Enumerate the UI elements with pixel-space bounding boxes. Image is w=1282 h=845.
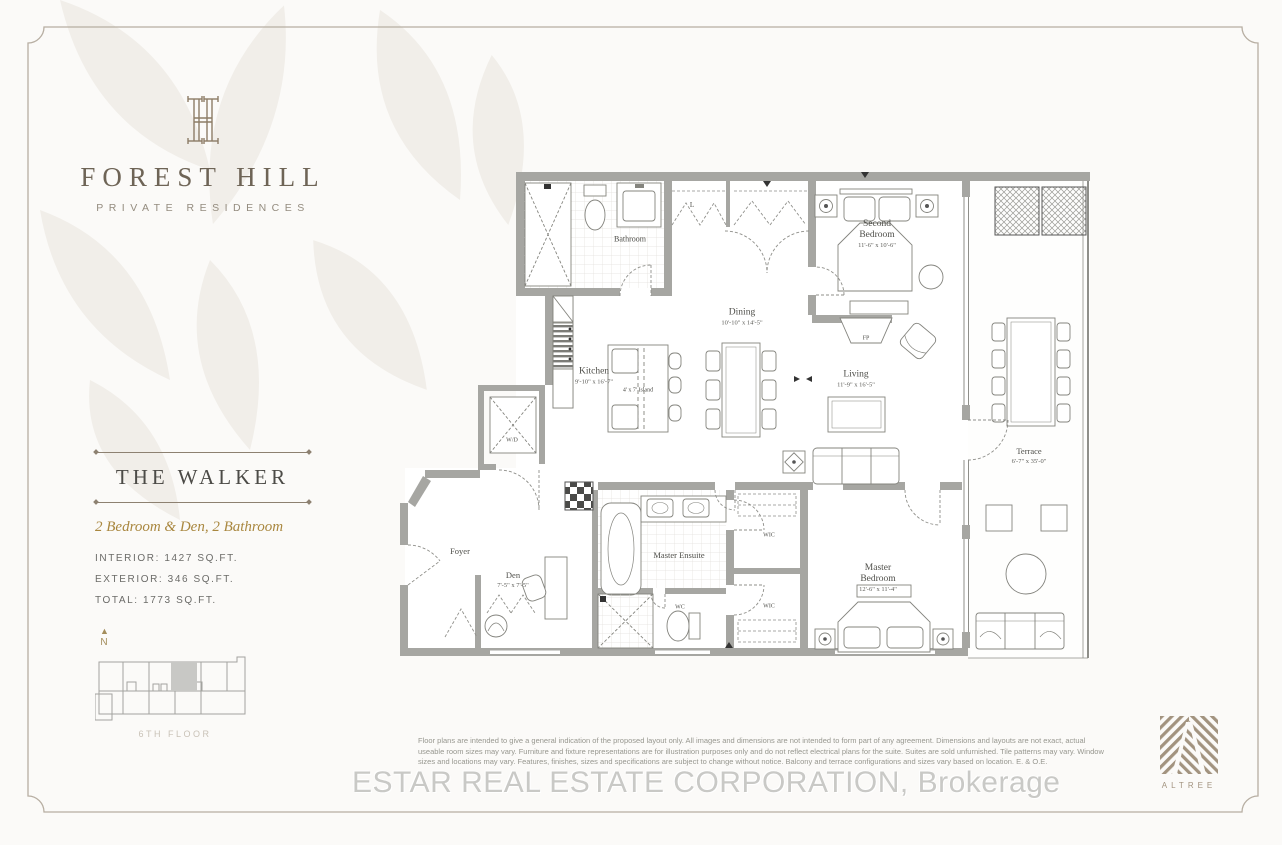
total-area: TOTAL: 1773 SQ.FT.	[95, 590, 310, 611]
room-label-den: Den 7'-5" x 7'-5"	[497, 571, 528, 589]
laundry-appliance	[490, 397, 536, 453]
ornamental-rule-bottom	[97, 502, 308, 503]
label-wic-bottom: WIC	[763, 604, 775, 611]
north-indicator: ▲ N	[100, 626, 109, 648]
keyplan-floor-label: 6TH FLOOR	[95, 729, 255, 739]
developer-logo-block: ALTREE	[1158, 716, 1220, 790]
keyplan-outline	[95, 654, 253, 724]
room-label-second-bedroom: Second Bedroom 11'-6" x 10'-6"	[847, 219, 907, 249]
disclaimer-text: Floor plans are intended to give a gener…	[418, 736, 1110, 768]
room-label-master-ensuite: Master Ensuite	[652, 551, 706, 561]
brand-name: FOREST HILL	[78, 162, 328, 193]
developer-name: ALTREE	[1158, 781, 1220, 790]
label-fireplace: FP	[863, 336, 870, 343]
brand-block: FOREST HILL PRIVATE RESIDENCES	[78, 88, 328, 214]
unit-stats: INTERIOR: 1427 SQ.FT. EXTERIOR: 346 SQ.F…	[95, 548, 310, 611]
floorplan-page: FOREST HILL PRIVATE RESIDENCES THE WALKE…	[0, 0, 1282, 845]
kitchen-fixtures	[553, 296, 573, 408]
room-label-dining: Dining 10'-10" x 14'-5"	[721, 307, 762, 326]
north-arrow-icon: ▲	[100, 626, 109, 637]
floor-plan-drawing	[395, 165, 1100, 670]
room-label-bathroom: Bathroom	[614, 234, 646, 243]
label-washer-dryer: W/D	[506, 438, 518, 445]
label-wc: WC	[675, 605, 685, 612]
interior-area: INTERIOR: 1427 SQ.FT.	[95, 548, 310, 569]
room-label-living: Living 11'-9" x 16'-5"	[837, 369, 875, 388]
room-label-terrace: Terrace 6'-7" x 35'-0"	[1012, 447, 1047, 465]
unit-type: 2 Bedroom & Den, 2 Bathroom	[95, 519, 310, 536]
brand-tagline: PRIVATE RESIDENCES	[78, 202, 328, 214]
room-label-closet: L	[690, 201, 694, 209]
room-label-master-bedroom: Master Bedroom 12'-6" x 11'-4"	[846, 563, 910, 593]
dining-table	[706, 343, 776, 437]
altree-logo-icon	[1160, 716, 1218, 774]
fh-monogram-icon	[180, 88, 226, 152]
label-island: 4' x 7' Island	[623, 388, 653, 395]
exterior-area: EXTERIOR: 346 SQ.FT.	[95, 569, 310, 590]
label-wic-top: WIC	[763, 533, 775, 540]
ornamental-rule-top	[97, 452, 308, 453]
brokerage-watermark: ESTAR REAL ESTATE CORPORATION, Brokerage	[352, 766, 932, 800]
building-keyplan: ▲ N 6TH FLOOR	[95, 626, 255, 739]
shaft	[565, 482, 593, 510]
unit-info-block: THE WALKER 2 Bedroom & Den, 2 Bathroom I…	[95, 452, 310, 611]
floor-plan	[395, 165, 1100, 670]
unit-name: THE WALKER	[95, 453, 310, 502]
room-label-foyer: Foyer	[450, 547, 470, 557]
room-label-kitchen: Kitchen 9'-10" x 16'-7"	[575, 366, 613, 385]
highlighted-unit	[171, 662, 197, 691]
north-label: N	[100, 637, 109, 648]
